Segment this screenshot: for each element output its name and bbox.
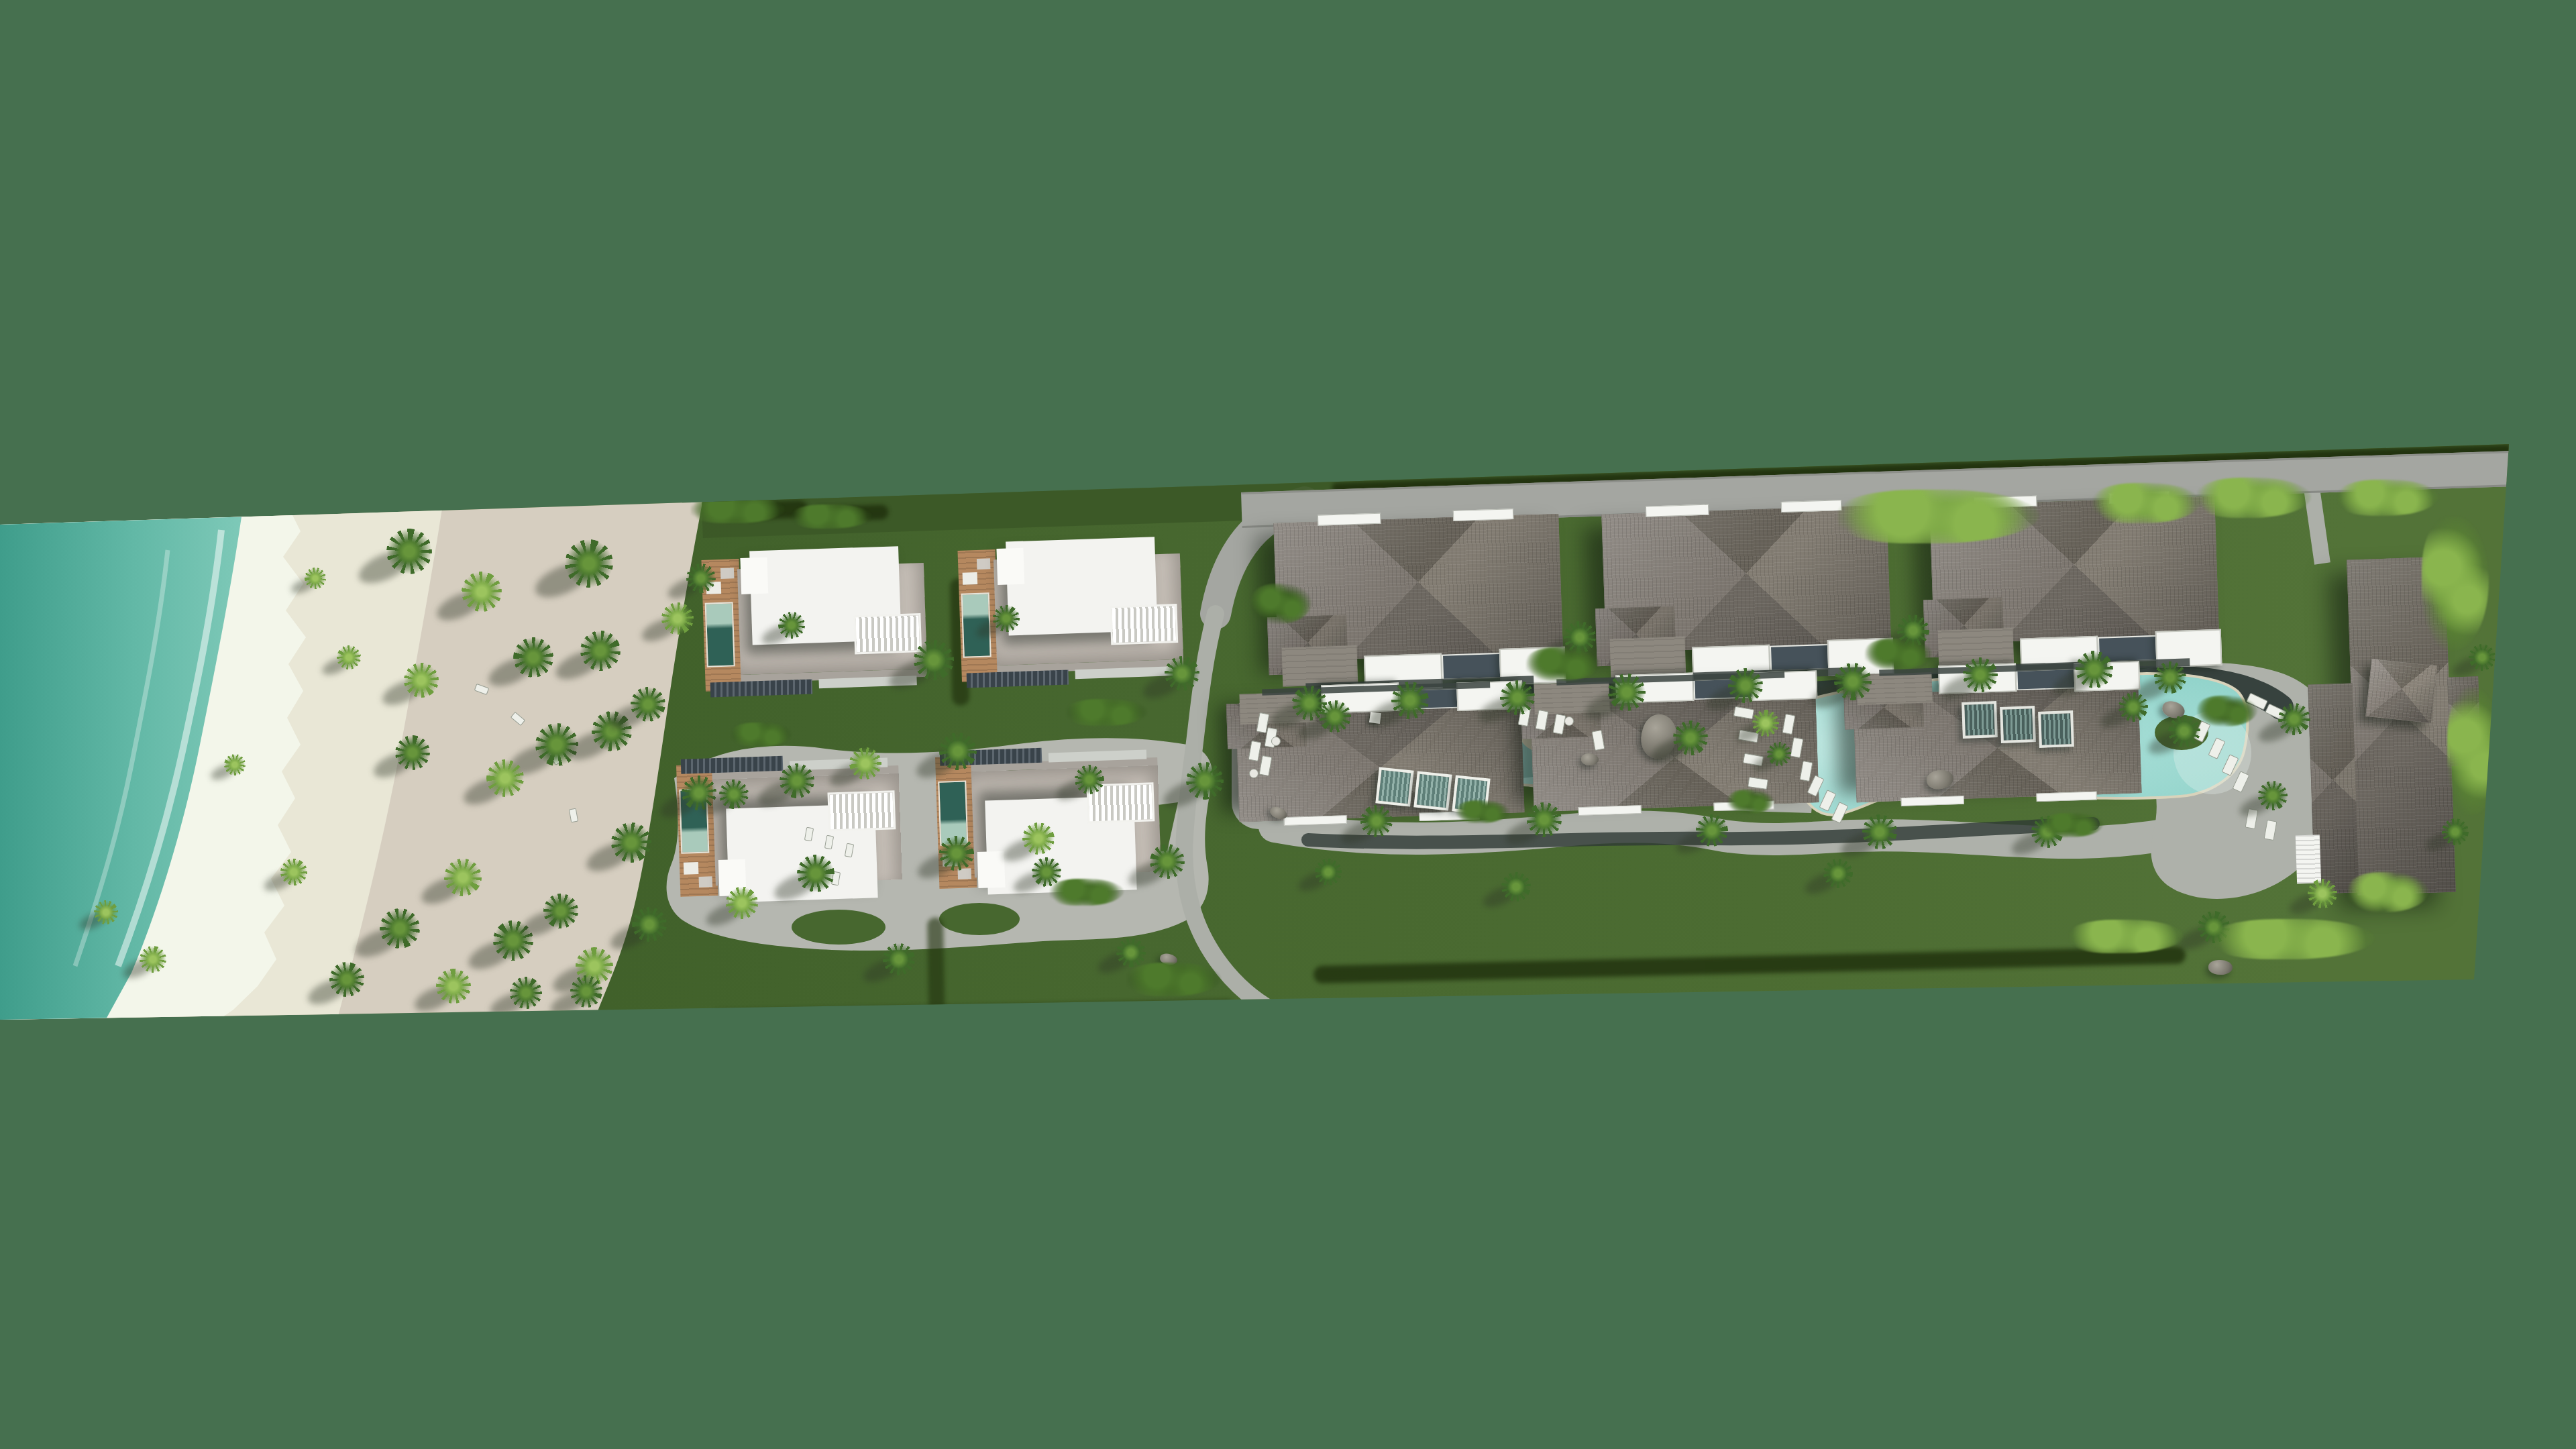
rock-formation: [1581, 753, 1599, 765]
site-plan-stage: [0, 0, 2576, 1449]
shrub-cluster: [1248, 1029, 1409, 1059]
rock-formation: [2208, 960, 2233, 975]
side-table: [1271, 737, 1281, 746]
villa-gap-hedge-2: [927, 918, 945, 1030]
pool-cabana: [1375, 767, 1413, 806]
pool-cabana: [2038, 710, 2074, 748]
condo-building-top-1: [1273, 507, 1564, 692]
pool-cabana: [1962, 701, 1998, 739]
pool-cabana: [2000, 706, 2036, 743]
clubhouse-connector-canopy: [2296, 835, 2321, 883]
pool-cabana: [1413, 771, 1452, 810]
clubhouse-pavilion-roof: [2365, 659, 2437, 723]
shrub-cluster: [1898, 997, 2059, 1026]
side-table: [1564, 716, 1574, 726]
beach-villa-2: [955, 533, 1185, 692]
palm-fronds: [632, 907, 667, 942]
shrub-cluster: [2447, 688, 2501, 815]
resort-site: [0, 0, 2576, 1449]
side-table: [1249, 769, 1258, 778]
shrub-cluster: [1560, 1018, 1727, 1048]
